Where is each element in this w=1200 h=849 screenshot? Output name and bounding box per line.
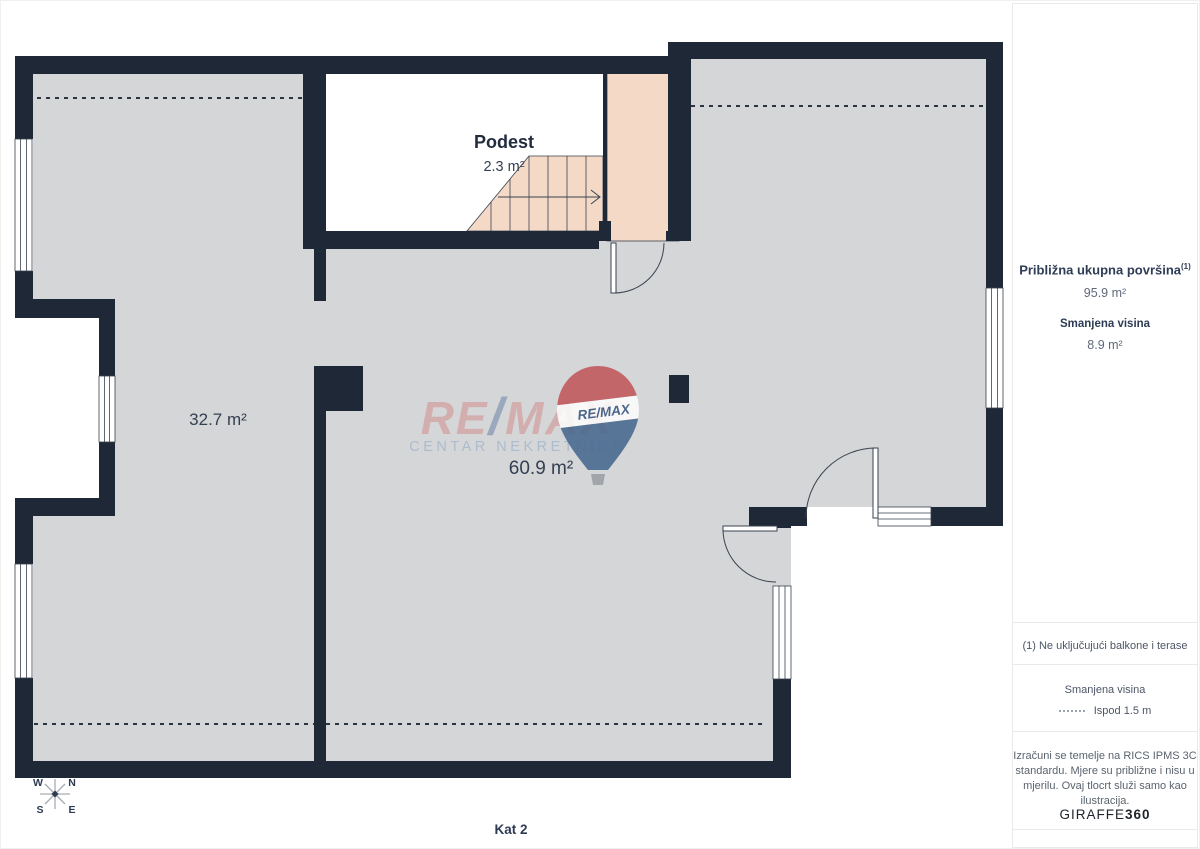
compass-e: E [68, 804, 75, 816]
sidebar-divider-3 [1013, 731, 1197, 732]
window-right-wall [986, 288, 1003, 408]
footnote-marker: (1) [1181, 262, 1191, 271]
info-sidebar: Približna ukupna površina(1) 95.9 m² Sma… [1012, 3, 1198, 848]
floorplan-drawing: RE/MAX CENTAR NEKRETNINA RE/MAX Podest 2… [1, 1, 1011, 849]
legend-item-label: Ispod 1.5 m [1094, 705, 1151, 717]
sidebar-divider-2 [1013, 664, 1197, 665]
pillar-right [669, 375, 689, 403]
compass-s: S [36, 804, 43, 816]
compass-n: N [68, 777, 76, 789]
window-left-lower [15, 564, 32, 678]
disclaimer-block: Izračuni se temelje na RICS IPMS 3C stan… [1013, 749, 1197, 809]
reduced-height-line-sample [1059, 710, 1085, 712]
pillar-left [314, 366, 363, 411]
sidebar-divider-1 [1013, 622, 1197, 623]
sidebar-divider-4 [1013, 829, 1197, 830]
disclaimer-line: standardu. Mjere su približne i nisu u [1013, 764, 1197, 779]
legend-row: Ispod 1.5 m [1013, 705, 1197, 717]
window-left-upper [15, 139, 32, 271]
window-bottom-of-main-room [878, 507, 931, 526]
compass-w: W [33, 777, 43, 789]
reduced-height-value: 8.9 m² [1013, 338, 1197, 352]
floor-room-main-upper [668, 59, 986, 507]
total-area-label: Približna ukupna površina(1) [1013, 262, 1197, 277]
giraffe360-logo: GIRAFFE360 [1013, 807, 1197, 822]
floor-title: Kat 2 [494, 822, 527, 837]
disclaimer-line: Izračuni se temelje na RICS IPMS 3C [1013, 749, 1197, 764]
disclaimer-line: mjerilu. Ovaj tlocrt služi samo kao [1013, 779, 1197, 794]
balloon-basket [591, 474, 605, 485]
total-area-value: 95.9 m² [1013, 286, 1197, 300]
reduced-height-label: Smanjena visina [1013, 318, 1197, 330]
legend-title: Smanjena visina [1013, 684, 1197, 696]
label-podest: Podest [474, 132, 534, 152]
left-recess [15, 318, 99, 498]
label-room-main-area: 60.9 m² [509, 458, 573, 479]
floorplan-page: RE/MAX CENTAR NEKRETNINA RE/MAX Podest 2… [0, 0, 1200, 849]
label-room-left-area: 32.7 m² [189, 410, 247, 429]
compass-rose: W N S E [33, 777, 76, 816]
window-recess [99, 376, 115, 442]
label-podest-area: 2.3 m² [483, 159, 524, 175]
window-bottom-right-side [773, 586, 791, 679]
footnote-text: (1) Ne uključujući balkone i terase [1013, 640, 1197, 652]
total-area-block: Približna ukupna površina(1) 95.9 m² Sma… [1013, 262, 1197, 352]
